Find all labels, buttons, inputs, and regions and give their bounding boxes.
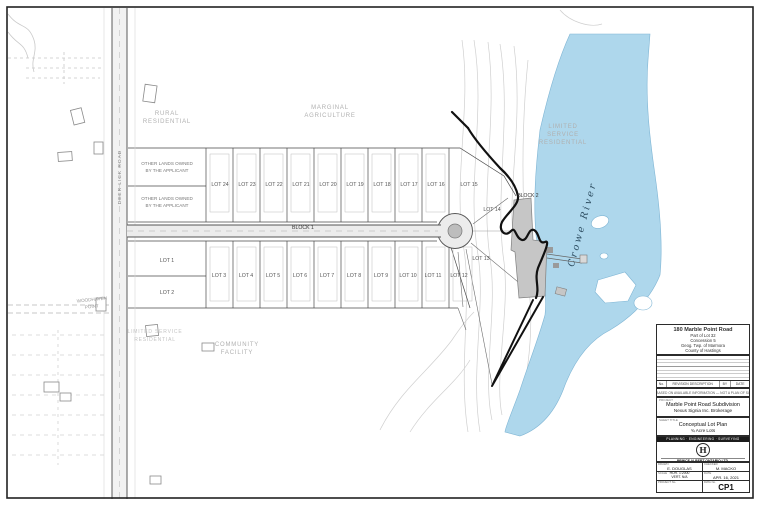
block1-label: BLOCK 1	[292, 225, 314, 231]
client-name: Nexus Signia Inc. Brokerage	[657, 408, 749, 413]
svg-text:LOT 2: LOT 2	[160, 290, 174, 296]
firm-box: PLANNING · ENGINEERING · SURVEYING H PRI…	[656, 436, 750, 462]
svg-text:LOT 17: LOT 17	[400, 182, 417, 188]
address-box: 180 Marble Point Road Part of Lot 32 Con…	[656, 324, 750, 355]
svg-text:LOT 19: LOT 19	[346, 182, 363, 188]
svg-text:LOT 24: LOT 24	[211, 182, 228, 188]
block2-label: BLOCK 2	[517, 193, 538, 199]
zone-rural-residential: RURAL	[155, 111, 179, 117]
svg-text:LOT 10: LOT 10	[399, 273, 416, 279]
svg-text:SERVICE: SERVICE	[547, 132, 579, 138]
svg-text:LOT 12: LOT 12	[450, 273, 467, 279]
svg-text:LOT 3: LOT 3	[212, 273, 226, 279]
block1-road	[127, 214, 512, 249]
svg-text:LOT 15: LOT 15	[460, 182, 477, 188]
zone-limited-service-residential: LIMITED	[548, 124, 577, 130]
svg-text:LOT 13: LOT 13	[472, 256, 489, 262]
note-strip: PLAN BASED ON AVAILABLE INFORMATION — NO…	[656, 388, 750, 397]
sheet-title-box: SHEET TITLE Conceptual Lot Plan ¾ Acre L…	[656, 417, 750, 436]
svg-text:FACILITY: FACILITY	[221, 350, 253, 356]
deer-lick-road	[104, 8, 135, 499]
site-plan-map: Crowe River	[0, 0, 760, 505]
svg-text:LOT 6: LOT 6	[293, 273, 307, 279]
drawing-sheet: Crowe River	[0, 0, 760, 505]
zone-limited-service-sw: LIMITED SERVICE	[128, 329, 183, 335]
dwg-number: CP1	[703, 483, 749, 492]
svg-text:LOT 16: LOT 16	[427, 182, 444, 188]
svg-text:LOT 21: LOT 21	[292, 182, 309, 188]
other-lands-labels: OTHER LANDS OWNED BY THE APPLICANT OTHER…	[141, 161, 193, 208]
svg-text:RESIDENTIAL: RESIDENTIAL	[134, 337, 176, 343]
firm-banner: PLANNING · ENGINEERING · SURVEYING	[657, 437, 749, 442]
title-block: 180 Marble Point Road Part of Lot 32 Con…	[656, 324, 752, 493]
svg-text:LOT 5: LOT 5	[266, 273, 280, 279]
project-box: PROJECT Marble Point Road Subdivision Ne…	[656, 397, 750, 417]
svg-text:RESIDENTIAL: RESIDENTIAL	[143, 119, 191, 125]
drawing-fields: DRAWN E. DOUGLAS CHECKED M. MACKO SCALE …	[656, 462, 750, 493]
revision-header: No. REVISION DESCRIPTION BY DATE	[657, 380, 749, 387]
firm-logo-icon: H	[696, 443, 710, 457]
svg-text:AGRICULTURE: AGRICULTURE	[304, 113, 355, 119]
svg-text:LOT 11: LOT 11	[425, 273, 442, 279]
svg-text:RESIDENTIAL: RESIDENTIAL	[539, 140, 587, 146]
svg-text:BY THE APPLICANT: BY THE APPLICANT	[146, 168, 189, 173]
svg-text:LOT 7: LOT 7	[320, 273, 334, 279]
project-no-field: PROJECT No.	[657, 481, 703, 492]
context-linework	[8, 14, 108, 465]
svg-text:BY THE APPLICANT: BY THE APPLICANT	[146, 203, 189, 208]
svg-text:LOT 1: LOT 1	[160, 258, 174, 264]
svg-text:LOT 18: LOT 18	[373, 182, 390, 188]
deer-lick-road-label: DEER LICK ROAD	[117, 150, 123, 205]
svg-text:LOT 4: LOT 4	[239, 273, 253, 279]
svg-text:LOT 14: LOT 14	[483, 207, 500, 213]
svg-text:LOT 23: LOT 23	[238, 182, 255, 188]
svg-text:OTHER LANDS OWNED: OTHER LANDS OWNED	[141, 196, 193, 201]
svg-text:LOT 22: LOT 22	[265, 182, 282, 188]
svg-text:OTHER LANDS OWNED: OTHER LANDS OWNED	[141, 161, 193, 166]
svg-text:LOT 9: LOT 9	[374, 273, 388, 279]
existing-houses	[44, 84, 214, 484]
zone-community-facility: COMMUNITY	[215, 342, 259, 348]
svg-text:LOT 8: LOT 8	[347, 273, 361, 279]
revision-table: No. REVISION DESCRIPTION BY DATE	[656, 355, 750, 388]
zone-marginal-agriculture: MARGINAL	[311, 105, 349, 111]
dwg-no-field: DWG No. CP1	[703, 481, 749, 492]
revision-rows	[657, 356, 749, 382]
svg-text:LOT 20: LOT 20	[319, 182, 336, 188]
